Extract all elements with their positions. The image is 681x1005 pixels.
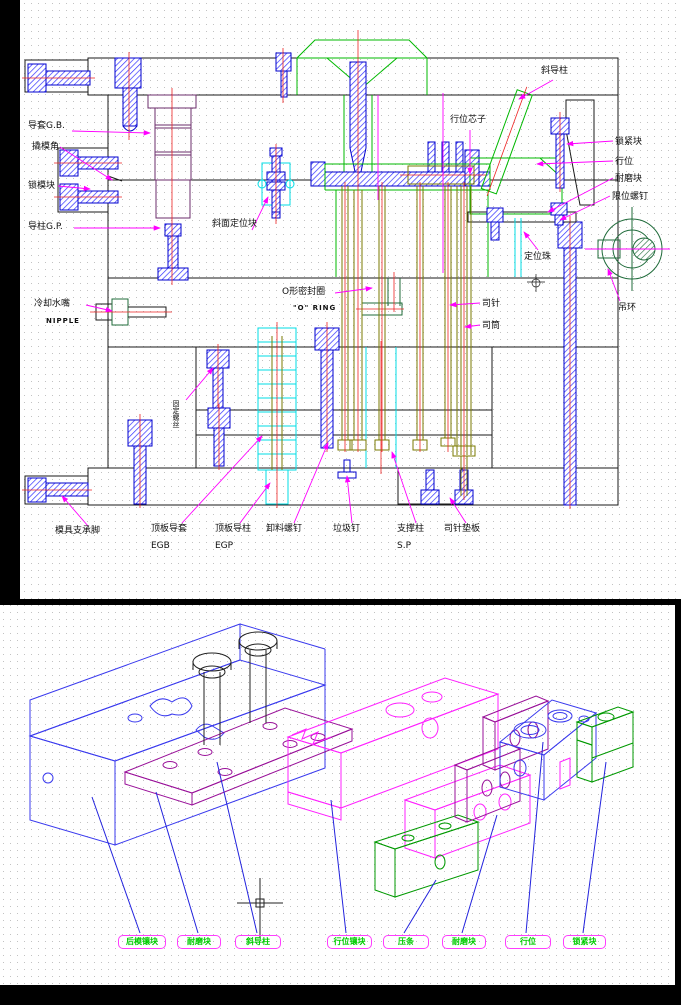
label-nipple-en: NIPPLE xyxy=(46,317,80,325)
label-o-ring-en: "O" RING xyxy=(293,304,336,312)
label-mold-lock-block: 锁模块 xyxy=(28,181,55,191)
label-mold-support-foot: 模具支承脚 xyxy=(55,526,100,536)
label-ejector-pin-plate: 司针垫板 xyxy=(444,524,480,534)
label-slide: 行位 xyxy=(615,157,633,167)
label-guide-pin: 导柱G.P. xyxy=(28,222,63,232)
label-fixing-screw: 固定螺丝 xyxy=(172,400,180,428)
label-pry-slot: 撬模角 xyxy=(32,142,59,152)
label-ejector-pin: 司针 xyxy=(482,299,500,309)
label-ejector-guide-pin: 顶板导柱 xyxy=(215,524,251,534)
cad-canvas: 导套G.B. 撬模角 锁模块 导柱G.P. 冷却水嘴 NIPPLE 模具支承脚 … xyxy=(0,0,681,1005)
tag-angle-pin: 斜导柱 xyxy=(235,935,281,949)
tag-slide: 行位 xyxy=(505,935,551,949)
label-egp-code: EGP xyxy=(215,541,233,551)
label-eye-bolt: 吊环 xyxy=(618,303,636,313)
label-angle-guide-pin: 斜导柱 xyxy=(541,66,568,76)
label-locking-block: 锁紧块 xyxy=(615,137,642,147)
bottom-drawing-panel xyxy=(0,605,675,985)
label-limit-screw: 限位螺钉 xyxy=(612,192,648,202)
label-incline-locating-block: 斜面定位块 xyxy=(212,219,257,229)
label-egb-code: EGB xyxy=(151,541,170,551)
label-o-ring: O形密封圈 xyxy=(282,287,325,297)
label-locating-ball: 定位珠 xyxy=(524,252,551,262)
label-stripper-screw: 卸料螺钉 xyxy=(266,524,302,534)
tag-wear-block-1: 耐磨块 xyxy=(177,935,221,949)
label-wear-block: 耐磨块 xyxy=(615,174,642,184)
tag-locking-block: 锁紧块 xyxy=(563,935,606,949)
label-slide-core: 行位芯子 xyxy=(450,115,486,125)
label-guide-bush: 导套G.B. xyxy=(28,121,65,131)
label-stop-pin: 垃圾钉 xyxy=(333,524,360,534)
tag-pressure-strip: 压条 xyxy=(383,935,429,949)
label-support-pillar: 支撑柱 xyxy=(397,524,424,534)
label-sp-code: S.P xyxy=(397,541,411,551)
label-cooling-nipple: 冷却水嘴 xyxy=(34,299,70,309)
tag-rear-insert: 后模镶块 xyxy=(118,935,166,949)
label-ejector-guide-bush: 顶板导套 xyxy=(151,524,187,534)
tag-slide-insert: 行位镶块 xyxy=(327,935,372,949)
drawing-svg xyxy=(0,0,681,1005)
label-ejector-sleeve: 司筒 xyxy=(482,321,500,331)
tag-wear-block-2: 耐磨块 xyxy=(442,935,486,949)
